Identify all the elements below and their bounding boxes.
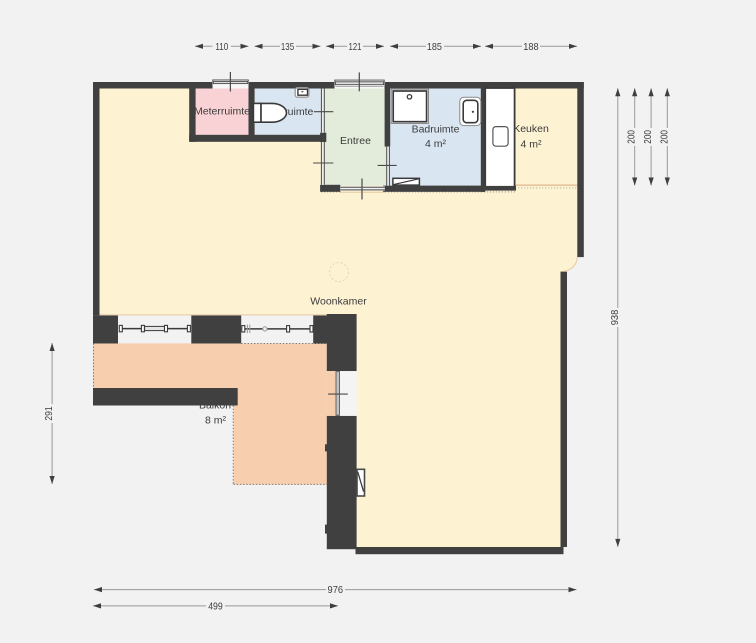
svg-text:291: 291 <box>44 406 55 420</box>
svg-text:Entree: Entree <box>340 135 371 147</box>
svg-text:Meterruimte: Meterruimte <box>194 106 250 118</box>
svg-text:976: 976 <box>328 585 344 596</box>
svg-text:Woonkamer: Woonkamer <box>310 296 367 308</box>
svg-text:8 m²: 8 m² <box>205 415 227 427</box>
svg-text:185: 185 <box>427 42 442 53</box>
svg-text:Badruimte: Badruimte <box>412 124 460 136</box>
svg-text:499: 499 <box>208 602 223 613</box>
svg-text:200: 200 <box>643 130 654 144</box>
svg-text:200: 200 <box>659 130 670 144</box>
svg-text:121: 121 <box>349 42 362 53</box>
svg-text:110: 110 <box>215 42 228 53</box>
svg-text:188: 188 <box>523 42 539 53</box>
svg-text:Keuken: Keuken <box>513 123 549 135</box>
svg-text:4 m²: 4 m² <box>521 139 543 151</box>
svg-text:200: 200 <box>627 130 638 144</box>
svg-text:135: 135 <box>281 42 294 53</box>
svg-text:4 m²: 4 m² <box>425 138 447 150</box>
svg-text:938: 938 <box>610 309 621 325</box>
